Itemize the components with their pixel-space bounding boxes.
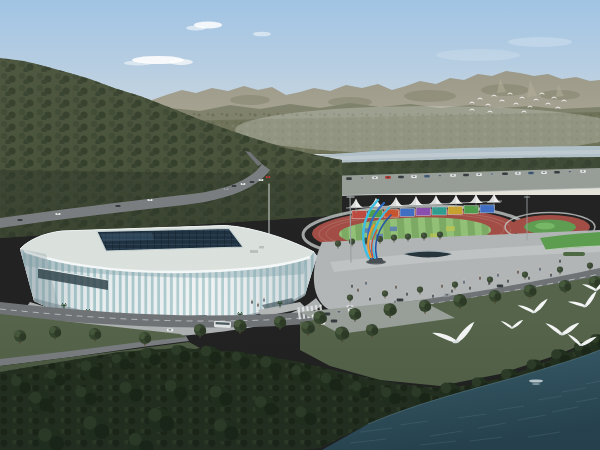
aerial-stadium-rendering: Aerial rendering of a white ribbed indoo… (0, 0, 600, 450)
scene-canvas: Aerial rendering of a white ribbed indoo… (0, 0, 600, 450)
tone-overlay (0, 0, 600, 450)
